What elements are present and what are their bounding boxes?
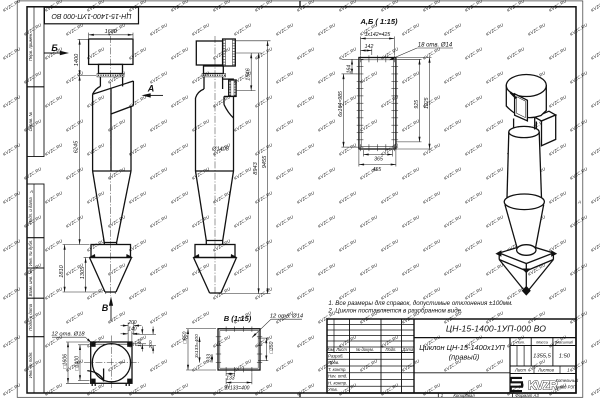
svg-text:А,Б ( 1:15): А,Б ( 1:15) <box>360 17 398 26</box>
svg-text:18 отв. Ø14: 18 отв. Ø14 <box>418 43 453 49</box>
svg-text:133: 133 <box>226 375 235 381</box>
svg-text:Масса: Масса <box>536 339 548 344</box>
svg-text:Циклон ЦН-15-1400х1УП: Циклон ЦН-15-1400х1УП <box>419 343 505 352</box>
svg-text:завод РЗП: завод РЗП <box>555 385 577 390</box>
svg-text:1. Все размеры для справок, до: 1. Все размеры для справок, допустимые о… <box>328 300 513 307</box>
svg-text:Взам. инв. №: Взам. инв. № <box>28 269 33 296</box>
svg-text:Инв. № дубл.: Инв. № дубл. <box>28 240 33 266</box>
svg-text:Н. контр.: Н. контр. <box>328 380 347 385</box>
svg-text:KVZR: KVZR <box>528 379 558 393</box>
svg-text:В: В <box>102 303 109 313</box>
svg-text:□1400: □1400 <box>75 356 81 371</box>
svg-text:Изм.: Изм. <box>326 347 335 352</box>
svg-text:Формат А3: Формат А3 <box>515 393 539 398</box>
svg-text:12 отв. Ø18: 12 отв. Ø18 <box>51 332 85 338</box>
svg-text:□650: □650 <box>183 331 189 343</box>
svg-text:Копировал: Копировал <box>453 393 475 398</box>
svg-text:365: 365 <box>374 157 383 163</box>
svg-text:А: А <box>29 189 33 194</box>
svg-text:1025: 1025 <box>424 97 430 109</box>
svg-text:Листов: Листов <box>537 368 554 373</box>
svg-text:(правый): (правый) <box>449 353 480 362</box>
svg-text:Ø1408: Ø1408 <box>211 147 230 153</box>
svg-text:133: 133 <box>207 354 213 363</box>
svg-text:Справ. №: Справ. № <box>28 112 33 132</box>
svg-text:□1606: □1606 <box>63 354 69 369</box>
svg-text:925: 925 <box>414 100 420 109</box>
svg-text:Дата: Дата <box>401 347 414 352</box>
svg-text:Лист: Лист <box>514 368 526 373</box>
svg-text:1305: 1305 <box>80 266 86 279</box>
svg-text:Инв. № подл.: Инв. № подл. <box>28 352 33 379</box>
svg-text:1546: 1546 <box>246 67 252 80</box>
svg-text:200: 200 <box>127 320 137 326</box>
svg-text:9455: 9455 <box>262 155 268 168</box>
svg-text:3x133=400: 3x133=400 <box>225 386 250 392</box>
svg-text:А: А <box>577 200 581 205</box>
svg-text:ЦН-15-1400-1УП-000 ВО: ЦН-15-1400-1УП-000 ВО <box>51 12 131 19</box>
svg-text:Утв.: Утв. <box>328 387 338 392</box>
svg-text:142: 142 <box>365 44 374 50</box>
svg-text:Б: Б <box>51 43 58 53</box>
svg-text:Разраб.: Разраб. <box>328 353 344 358</box>
svg-text:140: 140 <box>128 327 137 333</box>
svg-text:ЦН-15-1400-1УП-000 ВО: ЦН-15-1400-1УП-000 ВО <box>446 323 546 333</box>
svg-text:Лист: Лист <box>335 347 347 352</box>
svg-text:1810: 1810 <box>59 264 65 277</box>
svg-text:Подп. и дата: Подп. и дата <box>28 303 33 331</box>
svg-text:Котельный: Котельный <box>556 378 579 383</box>
svg-text:Т. контр.: Т. контр. <box>328 367 347 372</box>
svg-text:Лит.: Лит. <box>515 339 525 344</box>
svg-text:1355,5: 1355,5 <box>533 354 552 360</box>
svg-text:Масштаб: Масштаб <box>556 340 574 344</box>
svg-text:Перв. примен.: Перв. примен. <box>28 33 33 62</box>
svg-text:6245: 6245 <box>73 140 79 153</box>
svg-text:Подп.: Подп. <box>386 347 397 352</box>
svg-text:200: 200 <box>148 340 154 349</box>
svg-text:140: 140 <box>137 338 143 346</box>
svg-text:Подп. и дата: Подп. и дата <box>28 197 33 225</box>
svg-text:Нач. отд.: Нач. отд. <box>328 374 347 379</box>
svg-text:Пров.: Пров. <box>328 360 339 365</box>
svg-text:В (1:15): В (1:15) <box>224 314 252 323</box>
svg-text:1:50: 1:50 <box>559 354 571 360</box>
svg-text:12 отв. Ø14: 12 отв. Ø14 <box>270 314 303 320</box>
svg-text:А: А <box>147 84 155 94</box>
svg-text:1400: 1400 <box>74 53 80 66</box>
svg-text:1680: 1680 <box>105 29 118 35</box>
svg-text:□350: □350 <box>269 341 275 353</box>
svg-text:465: 465 <box>372 167 381 173</box>
svg-text:3x142=425: 3x142=425 <box>364 32 390 38</box>
svg-text:3x133=400: 3x133=400 <box>194 334 200 358</box>
svg-text:2. Циклон поставляется в разоб: 2. Циклон поставляется в разобранном вид… <box>327 308 462 315</box>
svg-text:8943: 8943 <box>253 161 259 174</box>
svg-text:164: 164 <box>347 65 353 74</box>
svg-text:6x164=985: 6x164=985 <box>338 91 344 117</box>
svg-text:№ докум.: № докум. <box>356 347 374 352</box>
